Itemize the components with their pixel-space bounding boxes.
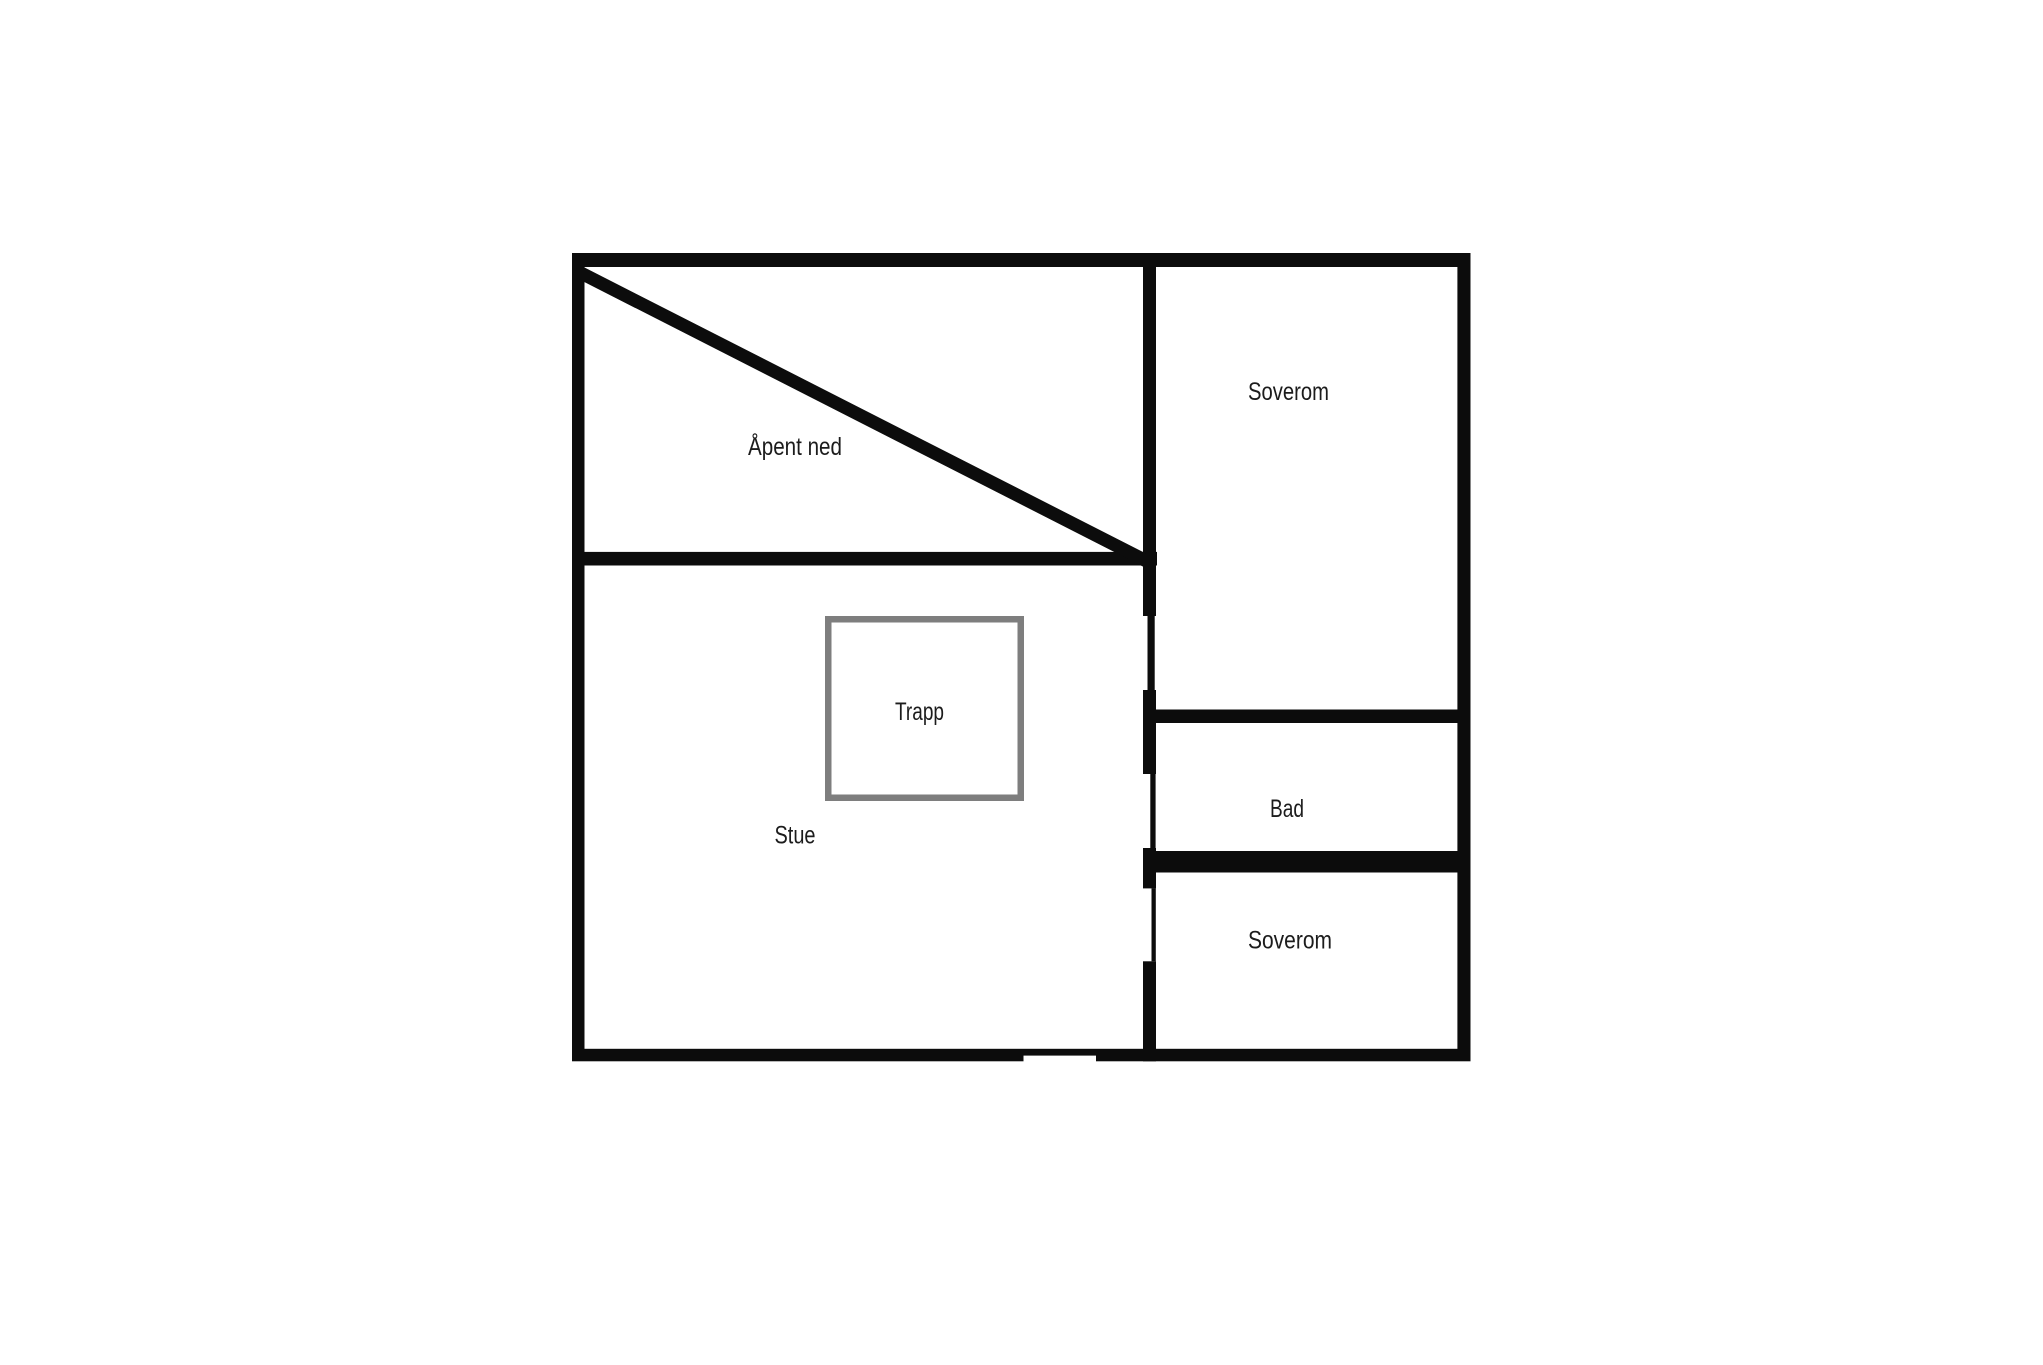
svg-text:Bad: Bad	[1270, 795, 1304, 823]
svg-text:Soverom: Soverom	[1248, 927, 1332, 955]
svg-text:Soverom: Soverom	[1248, 378, 1329, 406]
svg-text:Åpent ned: Åpent ned	[748, 431, 842, 461]
svg-text:Stue: Stue	[775, 822, 816, 850]
svg-text:Trapp: Trapp	[895, 698, 944, 726]
